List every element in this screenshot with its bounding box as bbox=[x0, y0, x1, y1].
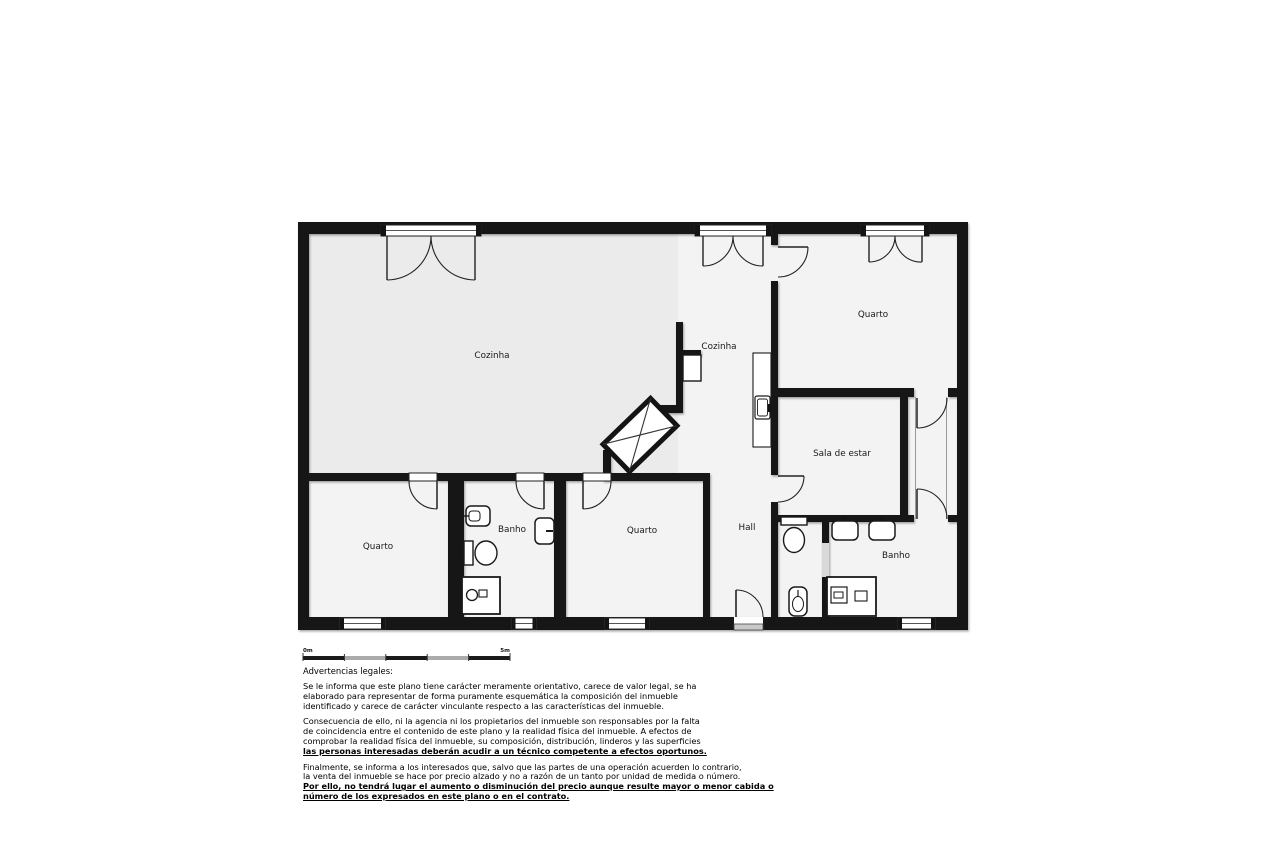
room-label-banho-left: Banho bbox=[498, 525, 526, 535]
room-label-cozinha-small: Cozinha bbox=[701, 342, 736, 352]
scale-segment bbox=[386, 656, 427, 660]
scale-bar: 0m 5m bbox=[303, 648, 510, 661]
scale-segment bbox=[303, 656, 344, 660]
legal-title: Advertencias legales: bbox=[303, 666, 803, 676]
bidet-icon bbox=[789, 587, 807, 616]
wall-v1a bbox=[771, 234, 778, 245]
scale-segment bbox=[344, 656, 385, 660]
room-label-quarto-bottom-middle: Quarto bbox=[627, 526, 657, 536]
room-label-hall: Hall bbox=[739, 523, 756, 533]
wall-left bbox=[298, 222, 309, 630]
room-label-banho-right: Banho bbox=[882, 551, 910, 561]
scale-segment bbox=[427, 656, 468, 660]
shower-icon bbox=[462, 577, 500, 614]
legal-line: identificado y carece de carácter vincul… bbox=[303, 702, 803, 712]
scale-segment bbox=[469, 656, 510, 660]
wall-h1a bbox=[309, 473, 409, 481]
window-icon bbox=[605, 618, 649, 629]
legal-paragraph-3: Finalmente, se informa a los interesados… bbox=[303, 763, 803, 802]
scale-end-label: 5m bbox=[500, 648, 510, 654]
room-label-sala-de-estar: Sala de estar bbox=[813, 449, 871, 459]
door-panel bbox=[409, 473, 437, 481]
window-icon bbox=[898, 618, 935, 629]
scale-start-label: 0m bbox=[303, 648, 313, 654]
sink-icon bbox=[462, 506, 490, 526]
door-panel bbox=[583, 473, 611, 481]
wall-h1c bbox=[544, 473, 583, 481]
legal-emphasis-line: las personas interesadas deberán acudir … bbox=[303, 747, 803, 757]
legal-paragraph-1: Se le informa que este plano tiene carác… bbox=[303, 682, 803, 711]
toilet-icon bbox=[464, 541, 497, 565]
wall-v1b bbox=[771, 281, 778, 475]
wall-quarto-sala-a bbox=[778, 388, 914, 397]
wall-basin-icon bbox=[535, 518, 554, 544]
wall-quarto-sala-b bbox=[948, 388, 957, 397]
wall-h1d bbox=[611, 473, 710, 481]
legal-paragraph-2: Consecuencia de ello, ni la agencia ni l… bbox=[303, 717, 803, 756]
wall-quarto-hall bbox=[703, 473, 710, 617]
kitchen-sink-icon bbox=[755, 396, 772, 419]
room-label-quarto-bottom-left: Quarto bbox=[363, 542, 393, 552]
floor-plan-page: Cozinha Cozinha Quarto Sala de estar Qua… bbox=[0, 0, 1280, 853]
wall-sala-closet bbox=[900, 397, 908, 515]
door-panel bbox=[516, 473, 544, 481]
room-label-quarto-top-right: Quarto bbox=[858, 310, 888, 320]
wall-kitchen-divider bbox=[676, 322, 683, 413]
wall-v1c bbox=[771, 502, 778, 617]
wall-banho-quarto bbox=[554, 481, 566, 617]
legal-notice: Advertencias legales: Se le informa que … bbox=[303, 666, 803, 802]
wc-sliding-door bbox=[822, 543, 829, 577]
room-label-cozinha-main: Cozinha bbox=[474, 351, 509, 361]
window-icon bbox=[340, 618, 385, 629]
toilet-icon bbox=[781, 517, 807, 553]
wall-sala-banho-b bbox=[948, 515, 957, 522]
wall-right bbox=[957, 222, 968, 630]
bathtub-icon bbox=[827, 577, 876, 616]
legal-emphasis-line: número de los expresados en este plano o… bbox=[303, 792, 803, 802]
wall-h1b bbox=[437, 473, 516, 481]
kitchen-counter-icon bbox=[683, 355, 701, 381]
window-icon bbox=[512, 618, 536, 629]
